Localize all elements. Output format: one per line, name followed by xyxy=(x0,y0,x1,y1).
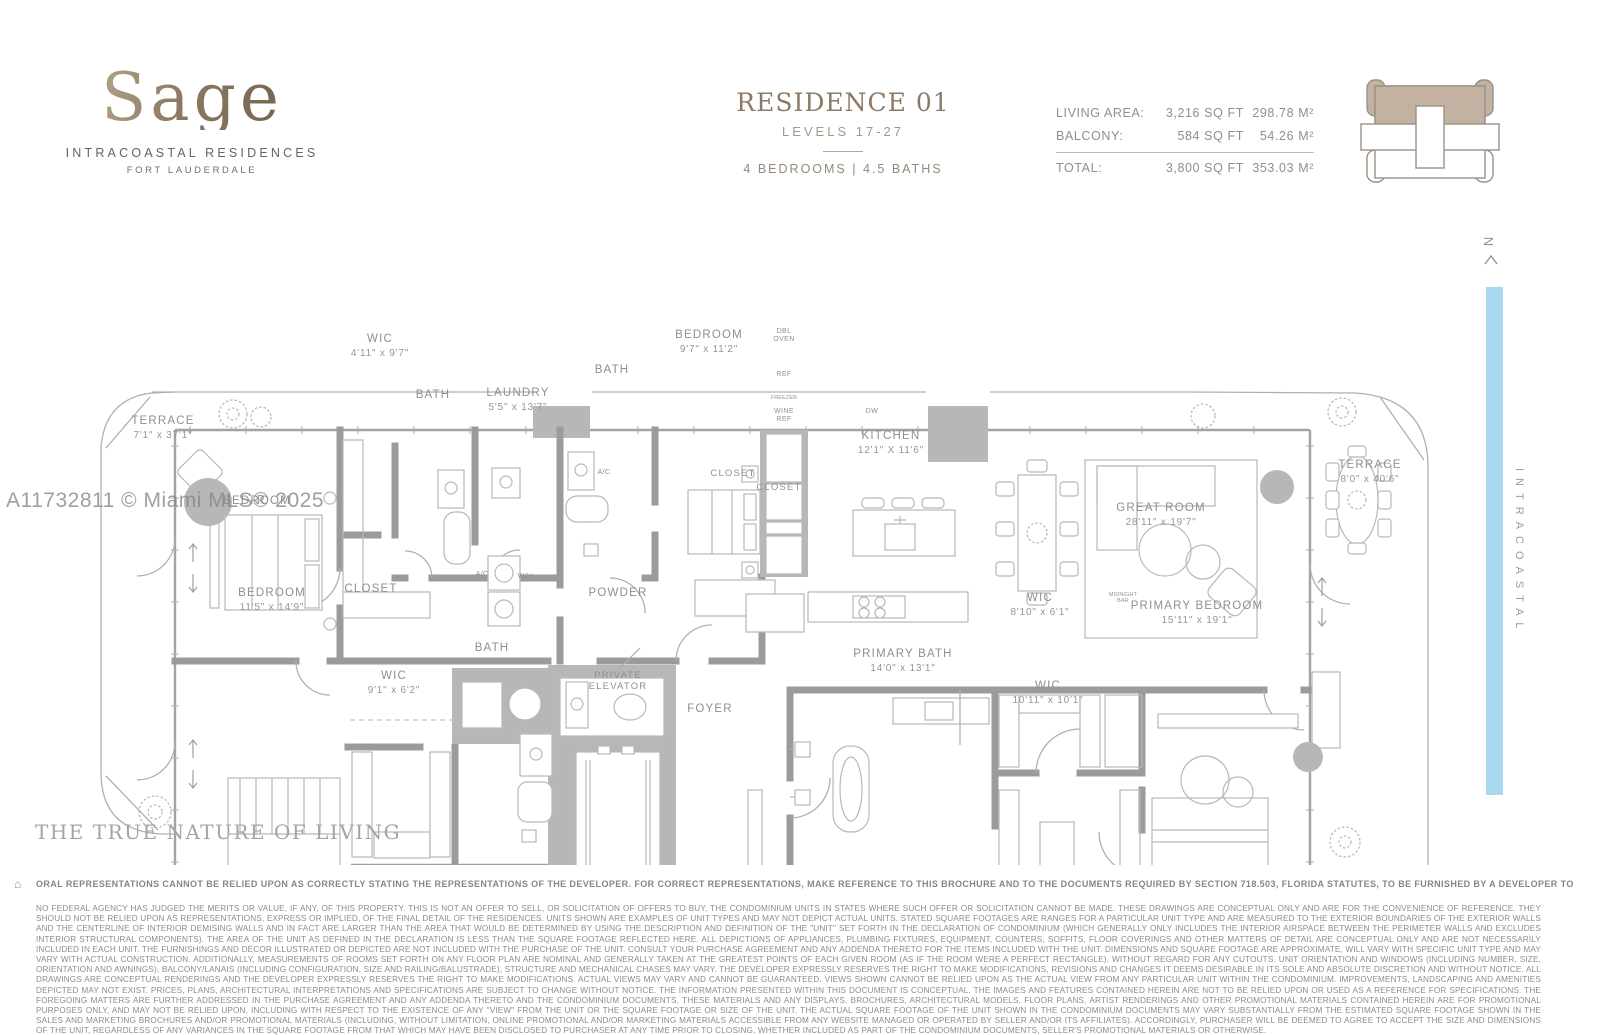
stat-metric: 353.03 M² xyxy=(1244,161,1314,175)
stat-sqft: 584 SQ FT xyxy=(1160,129,1244,143)
key-plan xyxy=(1353,60,1509,196)
residence-config: 4 BEDROOMS | 4.5 BATHS xyxy=(693,162,993,176)
residence-title-block: RESIDENCE 01 LEVELS 17-27 4 BEDROOMS | 4… xyxy=(693,88,993,176)
washer-icon xyxy=(488,556,520,590)
toilet-icon xyxy=(584,544,598,556)
room-label: LAUNDRY5'5" x 13'7" xyxy=(486,387,549,413)
stat-row-living: LIVING AREA: 3,216 SQ FT 298.78 M² xyxy=(1056,106,1314,120)
wic-island-dresser xyxy=(1040,822,1074,865)
kitchen-appliance-column xyxy=(760,430,808,577)
vanity-icon xyxy=(566,682,588,728)
midnight-bar-niche xyxy=(1105,695,1142,767)
room-label: WIC4'11" x 9'7" xyxy=(351,333,409,359)
terrace-vestibule xyxy=(1312,672,1340,748)
floor-plan: TERRACE7'1" x 37'1"BEDROOMWIC4'11" x 9'7… xyxy=(0,215,1600,865)
stat-row-balcony: BALCONY: 584 SQ FT 54.26 M² xyxy=(1056,129,1314,143)
room-label: WIC9'1" x 6'2" xyxy=(368,670,421,696)
intracoastal-label: INTRACOASTAL xyxy=(1513,468,1525,648)
brand-city: FORT LAUDERDALE xyxy=(62,165,322,176)
stat-metric: 298.78 M² xyxy=(1244,106,1314,120)
private-elevator-cab xyxy=(576,752,660,865)
stat-label: BALCONY: xyxy=(1056,129,1160,143)
freestanding-tub-icon xyxy=(833,746,869,832)
water-heater-icon xyxy=(509,688,541,720)
disclaimer-bold-line: ORAL REPRESENTATIONS CANNOT BE RELIED UP… xyxy=(36,879,1576,889)
room-label: WINEREF xyxy=(774,408,794,423)
wine-ref-icon xyxy=(766,536,802,574)
room-label: BATH xyxy=(416,389,451,401)
stats-divider xyxy=(1056,152,1314,153)
planter-icon xyxy=(1260,470,1294,504)
dining-table-icon xyxy=(1018,475,1056,591)
compass-arrow-icon xyxy=(1483,254,1499,266)
mls-watermark: A11732811 © Miami MLS® 2025 xyxy=(6,489,324,513)
tree-icon xyxy=(1328,398,1356,426)
bed-icon xyxy=(1152,798,1268,865)
room-label: W/H xyxy=(518,573,533,580)
room-label: PRIMARY BEDROOM15'11" x 19'1" xyxy=(1131,600,1264,626)
vanity-icon xyxy=(568,452,594,490)
stat-metric: 54.26 M² xyxy=(1244,129,1314,143)
room-label: POWDER xyxy=(589,587,648,599)
room-label: CLOSET xyxy=(756,482,801,493)
ac-unit-icon xyxy=(462,682,502,728)
toilet-icon xyxy=(614,694,646,720)
bathtub-icon xyxy=(444,512,470,564)
intracoastal-water-strip xyxy=(1486,287,1503,795)
room-label: DBLOVEN xyxy=(773,328,794,343)
freezer-icon xyxy=(766,522,802,534)
room-label: BATH xyxy=(595,364,630,376)
closet-box xyxy=(746,594,804,632)
toilet-icon xyxy=(795,742,810,757)
mechanical-closet xyxy=(452,668,548,744)
room-label: FREEZER xyxy=(771,395,798,401)
media-console xyxy=(1158,714,1298,728)
residence-title: RESIDENCE 01 xyxy=(693,88,993,117)
dryer-icon xyxy=(488,592,520,626)
stat-sqft: 3,216 SQ FT xyxy=(1160,106,1244,120)
compass-north-label: N xyxy=(1481,237,1496,246)
tree-icon xyxy=(251,407,271,427)
vanity-icon xyxy=(520,734,552,776)
kitchen-island-icon xyxy=(853,510,955,556)
stat-row-total: TOTAL: 3,800 SQ FT 353.03 M² xyxy=(1056,161,1314,175)
toilet-icon xyxy=(522,830,536,842)
tree-icon xyxy=(219,400,247,428)
room-label: KITCHEN12'1" X 11'6" xyxy=(858,430,924,456)
title-divider xyxy=(823,151,863,152)
room-label: CLOSET xyxy=(344,583,397,595)
tree-icon xyxy=(1191,404,1215,428)
brand-name: Sage xyxy=(62,66,322,130)
stat-label: LIVING AREA: xyxy=(1056,106,1160,120)
equal-housing-icon: ⌂ xyxy=(14,877,21,891)
room-label: PRIVATEELEVATOR xyxy=(589,670,648,692)
brand-subtitle: INTRACOASTAL RESIDENCES xyxy=(62,146,322,160)
tagline: THE TRUE NATURE OF LIVING xyxy=(35,820,401,844)
key-plan-outline xyxy=(1361,80,1499,182)
room-label: CLOSET xyxy=(710,468,755,479)
residence-levels: LEVELS 17-27 xyxy=(693,124,993,139)
bidet-icon xyxy=(795,790,810,805)
room-label: A/C xyxy=(476,571,489,578)
area-stats: LIVING AREA: 3,216 SQ FT 298.78 M² BALCO… xyxy=(1056,106,1314,184)
room-label: A/C xyxy=(598,469,611,476)
bathtub-icon xyxy=(518,782,552,822)
room-label: REF xyxy=(776,371,791,378)
stat-sqft: 3,800 SQ FT xyxy=(1160,161,1244,175)
coffee-table-icon xyxy=(1139,524,1191,576)
room-label: BEDROOM9'7" x 11'2" xyxy=(675,329,743,355)
brand-logo: Sage INTRACOASTAL RESIDENCES FORT LAUDER… xyxy=(62,66,322,176)
room-label: BATH xyxy=(475,642,510,654)
planter-icon xyxy=(1293,742,1323,772)
console-table xyxy=(748,790,762,865)
room-label: TERRACE7'1" x 37'1" xyxy=(131,415,194,441)
room-label: DW xyxy=(866,408,878,415)
room-label: PRIMARY BATH14'0" x 13'1" xyxy=(853,648,952,674)
bathtub-icon xyxy=(566,496,608,522)
tree-icon xyxy=(1330,827,1360,857)
room-label: FOYER xyxy=(687,703,733,715)
vanity-icon xyxy=(438,470,464,508)
double-oven-icon xyxy=(766,434,802,482)
stat-label: TOTAL: xyxy=(1056,161,1160,175)
disclaimer-body: NO FEDERAL AGENCY HAS JUDGED THE MERITS … xyxy=(36,904,1541,1035)
